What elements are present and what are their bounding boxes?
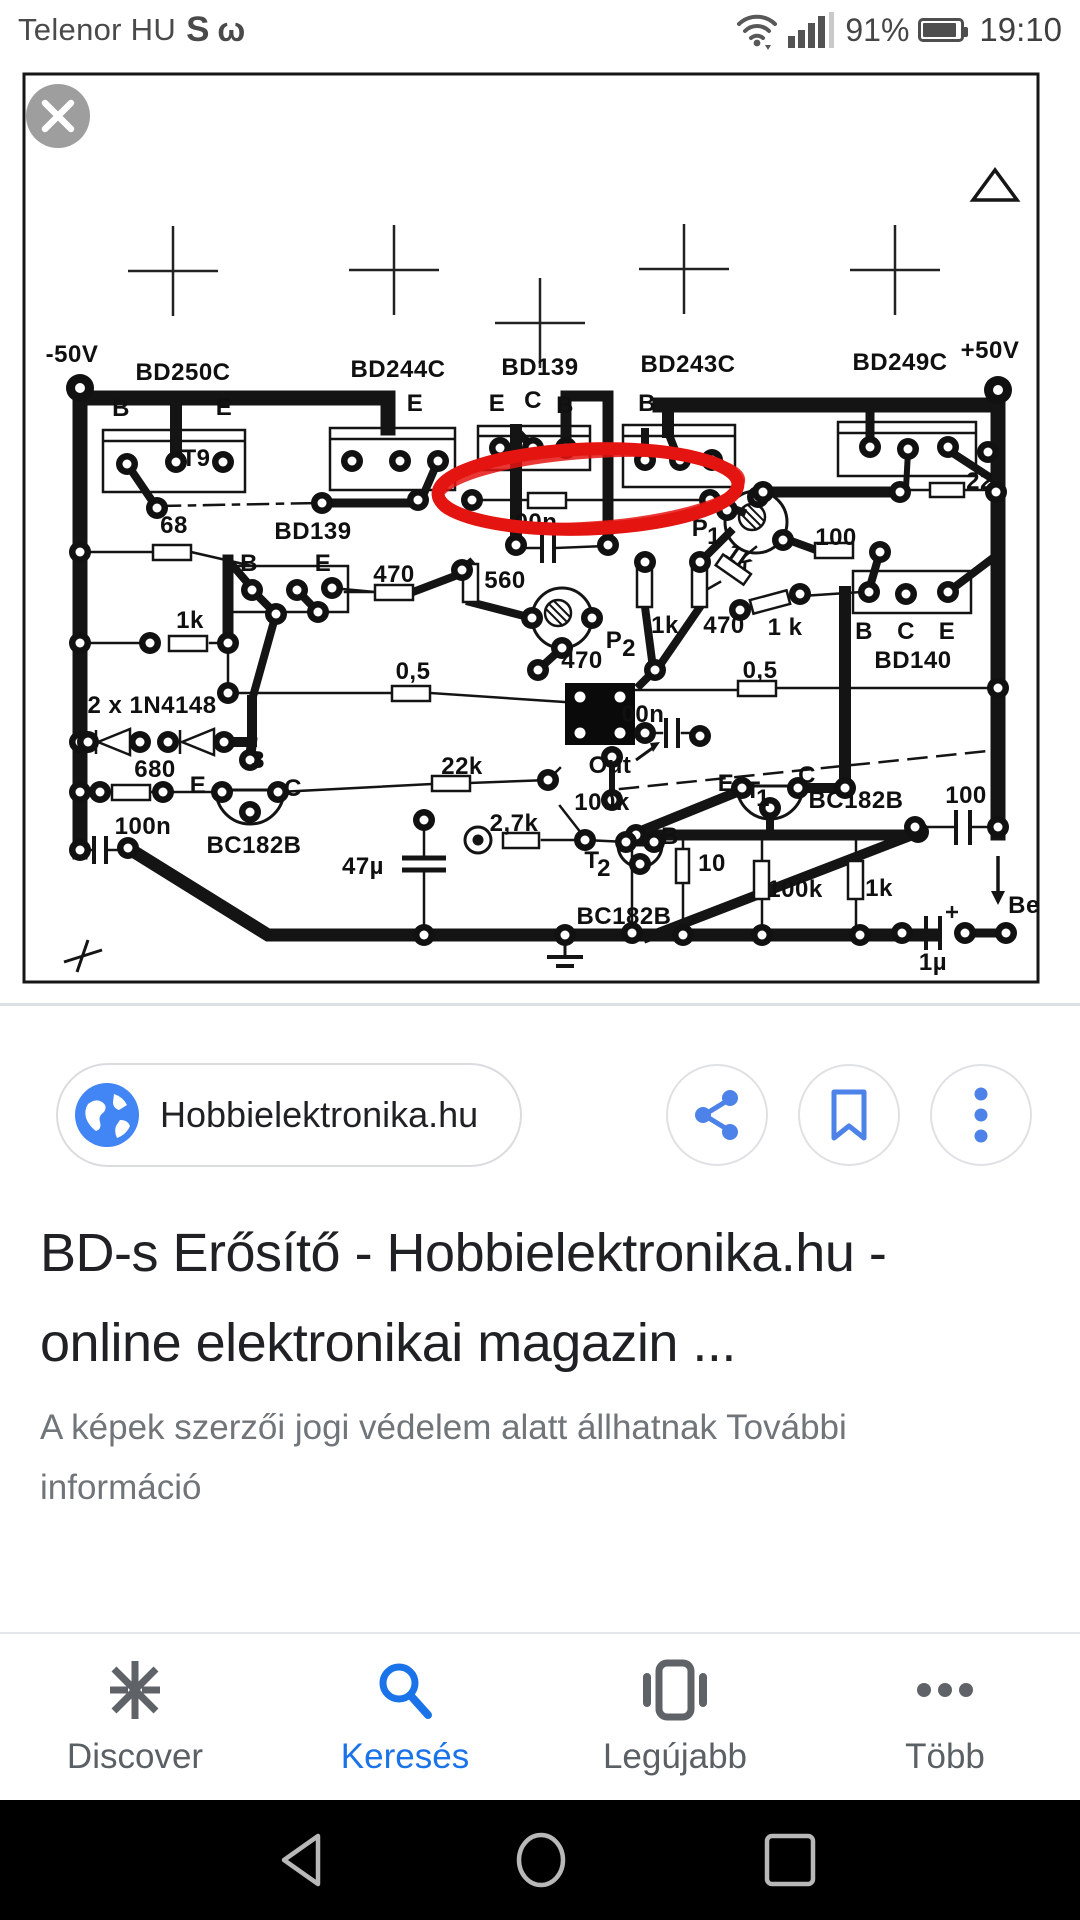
pcb-label: BC182B	[206, 832, 301, 859]
snippet-line-2: információ	[40, 1468, 201, 1507]
pcb-label: E	[315, 550, 332, 577]
pcb-label: 22k	[441, 753, 483, 780]
share-icon	[692, 1087, 742, 1143]
pcb-label: 2	[597, 855, 611, 882]
pcb-label: C	[798, 762, 816, 789]
pcb-label: BC182B	[576, 903, 671, 930]
pcb-label: 00n	[622, 701, 665, 728]
pcb-label: BD250C	[135, 359, 230, 386]
pcb-label: 0,5	[743, 657, 778, 684]
pcb-label: Out	[589, 752, 632, 779]
pcb-label: E	[489, 390, 506, 417]
status-bar: Telenor HU S ω 91%	[0, 0, 1080, 60]
notification-w-icon: ω	[217, 11, 245, 49]
pcb-label: BD244C	[350, 356, 445, 383]
tab-latest-label: Legújabb	[603, 1737, 747, 1777]
share-button[interactable]	[666, 1064, 768, 1166]
latest-icon	[639, 1657, 711, 1723]
pcb-label: E	[216, 394, 233, 421]
tab-discover-label: Discover	[67, 1737, 203, 1777]
image-result-viewer[interactable]: -50VBD250CBD244CBD139BD243CBD249C+50VBEE…	[0, 60, 1080, 1005]
tab-discover[interactable]: Discover	[0, 1634, 270, 1800]
pcb-label: E	[718, 770, 735, 797]
copyright-snippet: A képek szerzői jogi védelem alatt állha…	[40, 1398, 1050, 1518]
pcb-label: 470	[373, 561, 415, 588]
tab-search[interactable]: Keresés	[270, 1634, 540, 1800]
snippet-line-1: A képek szerzői jogi védelem alatt állha…	[40, 1408, 847, 1447]
pcb-label: C	[284, 775, 302, 802]
pcb-label: B	[855, 618, 873, 645]
close-icon	[26, 84, 90, 148]
pcb-label: 2	[622, 635, 636, 662]
pcb-label: 470	[561, 647, 603, 674]
pcb-label: T9	[181, 445, 210, 472]
pcb-label: 1k	[176, 607, 204, 634]
pcb-label: 100	[945, 782, 987, 809]
pcb-label: E	[190, 772, 207, 799]
pcb-label: 100n	[115, 813, 172, 840]
bookmark-button[interactable]	[798, 1064, 900, 1166]
pcb-label: 100	[815, 524, 857, 551]
pcb-label: BD139	[501, 354, 578, 381]
tab-more[interactable]: Több	[810, 1634, 1080, 1800]
more-options-button[interactable]	[930, 1064, 1032, 1166]
signal-icon	[788, 10, 836, 50]
android-recents-button[interactable]	[730, 1800, 850, 1920]
pcb-label: -50V	[46, 341, 99, 368]
pcb-label: 0,5	[396, 658, 431, 685]
pcb-label: 1 k	[768, 614, 803, 641]
pcb-label: B	[556, 392, 574, 419]
android-nav-bar	[0, 1800, 1080, 1920]
pcb-label: 100k	[574, 789, 630, 816]
title-line-1: BD-s Erősítő - Hobbielektronika.hu -	[40, 1223, 886, 1283]
pcb-label: E	[939, 618, 956, 645]
pcb-label: BC182B	[808, 787, 903, 814]
android-recents-icon	[762, 1832, 818, 1888]
pcb-label: 470	[703, 612, 745, 639]
section-divider	[0, 1003, 1080, 1006]
pcb-scan-image: -50VBD250CBD244CBD139BD243CBD249C+50VBEE…	[0, 60, 1080, 1005]
pcb-label: B	[661, 823, 679, 850]
screen: Telenor HU S ω 91%	[0, 0, 1080, 1920]
pcb-label: 1	[707, 523, 721, 550]
discover-icon	[102, 1657, 168, 1723]
pcb-label: 1	[756, 785, 770, 812]
android-home-icon	[513, 1832, 569, 1888]
result-title[interactable]: BD-s Erősítő - Hobbielektronika.hu - onl…	[40, 1208, 1050, 1388]
source-chip[interactable]: Hobbielektronika.hu	[56, 1063, 522, 1167]
pcb-label: B	[112, 395, 130, 422]
pcb-label: 2,7k	[490, 810, 539, 837]
clock: 19:10	[979, 11, 1062, 49]
pcb-label: 22	[966, 468, 994, 495]
image-actions	[666, 1064, 1032, 1166]
pcb-label: E	[407, 390, 424, 417]
tab-more-label: Több	[905, 1737, 985, 1777]
carrier-label: Telenor HU	[18, 12, 176, 48]
pcb-label: P	[606, 627, 623, 654]
search-icon	[372, 1657, 438, 1723]
pcb-label: B	[638, 390, 656, 417]
battery-icon	[918, 18, 964, 42]
pcb-label: Be	[1008, 892, 1040, 919]
pcb-label: 47µ	[342, 853, 384, 880]
battery-percent: 91%	[845, 12, 909, 49]
pcb-label: BD243C	[640, 351, 735, 378]
pcb-label: 100k	[767, 876, 823, 903]
pcb-label: 3	[251, 747, 265, 774]
pcb-label: BD140	[874, 647, 951, 674]
pcb-label: 680	[134, 756, 176, 783]
pcb-label: 1µ	[919, 949, 947, 976]
notification-s-icon: S	[186, 10, 209, 50]
android-back-icon	[278, 1832, 326, 1888]
android-back-button[interactable]	[242, 1800, 362, 1920]
more-vert-icon	[973, 1086, 989, 1144]
tab-search-label: Keresés	[341, 1737, 469, 1777]
pcb-label: 2 x 1N4148	[87, 692, 216, 719]
pcb-label: C	[524, 387, 542, 414]
pcb-label: 560	[484, 567, 526, 594]
pcb-label: +50V	[961, 337, 1020, 364]
chip-row: Hobbielektronika.hu	[56, 1063, 1032, 1167]
pcb-label: 10	[698, 850, 726, 877]
title-line-2: online elektronikai magazin ...	[40, 1313, 736, 1373]
pcb-label: 1k	[651, 612, 679, 639]
tab-latest[interactable]: Legújabb	[540, 1634, 810, 1800]
bottom-nav: Discover Keresés Legújabb Több	[0, 1632, 1080, 1800]
source-site-label: Hobbielektronika.hu	[160, 1094, 478, 1136]
android-home-button[interactable]	[481, 1800, 601, 1920]
close-button[interactable]	[26, 84, 90, 148]
more-horiz-icon	[910, 1657, 980, 1723]
pcb-label: B	[240, 550, 258, 577]
pcb-label: BD139	[274, 518, 351, 545]
pcb-label: 68	[160, 512, 188, 539]
globe-icon	[74, 1082, 140, 1148]
pcb-label: 1k	[865, 875, 893, 902]
wifi-icon	[735, 9, 779, 51]
pcb-label: C	[897, 618, 915, 645]
bookmark-icon	[827, 1087, 871, 1143]
pcb-label: BD249C	[852, 349, 947, 376]
